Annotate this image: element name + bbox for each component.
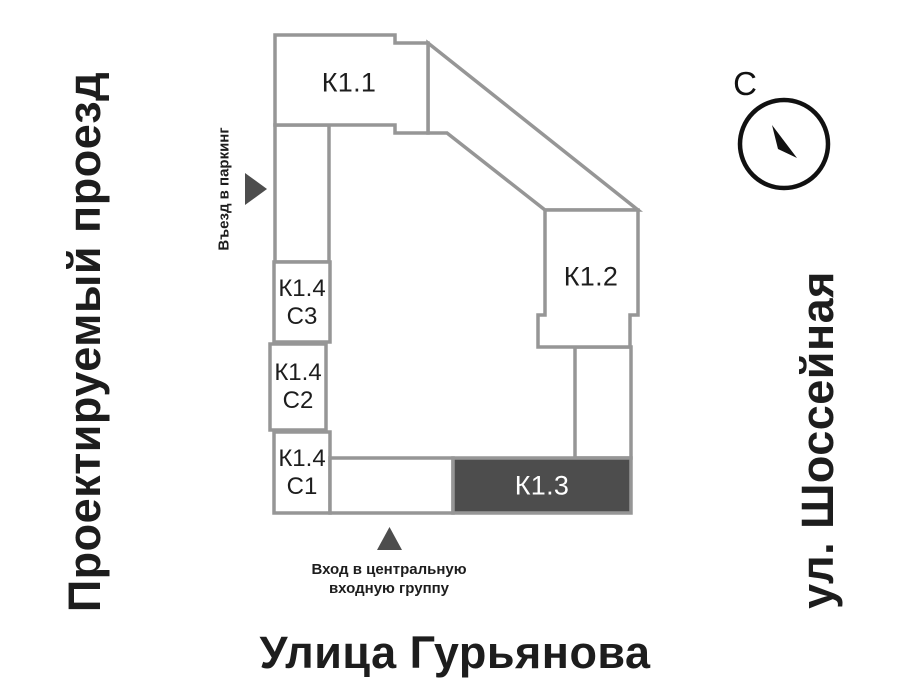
street-label-bottom: Улица Гурьянова xyxy=(259,627,650,679)
building-k11-label: К1.1 xyxy=(322,68,376,99)
building-k14-s1-label: К1.4 С1 xyxy=(278,445,325,501)
parking-entrance-arrow-icon xyxy=(245,173,267,205)
main-entrance-arrow-icon xyxy=(377,527,402,550)
street-label-left: Проектируемый проезд xyxy=(59,72,111,612)
main-entrance-label-line2: входную группу xyxy=(311,579,466,598)
building-k14-s3-label-line1: К1.4 xyxy=(278,275,325,303)
building-corridor-shape[interactable] xyxy=(575,347,631,458)
main-entrance-label-line1: Вход в центральную xyxy=(311,560,466,579)
building-k14-s3-label-line2: С3 xyxy=(278,303,325,331)
building-bottom-wing-shape[interactable] xyxy=(330,458,453,513)
site-plan: Проектируемый проезд ул. Шоссейная Улица… xyxy=(0,0,900,700)
building-diagonal-wing-shape[interactable] xyxy=(428,43,638,210)
building-k14-s1-label-line1: К1.4 xyxy=(278,445,325,473)
building-k14-s2-label-line1: К1.4 xyxy=(274,359,321,387)
building-k13-label: К1.3 xyxy=(515,471,569,502)
building-k14-s3-label: К1.4 С3 xyxy=(278,275,325,331)
building-k14-s1-label-line2: С1 xyxy=(278,473,325,501)
building-k14-s2-label-line2: С2 xyxy=(274,387,321,415)
street-label-right: ул. Шоссейная xyxy=(792,271,844,609)
building-k14-strip-shape[interactable] xyxy=(275,125,329,262)
main-entrance-label: Вход в центральную входную группу xyxy=(311,560,466,598)
compass-needle-icon xyxy=(772,125,797,158)
building-k14-s2-label: К1.4 С2 xyxy=(274,359,321,415)
compass-north-label: С xyxy=(733,65,757,103)
parking-entrance-label: Въезд в паркинг xyxy=(215,127,234,250)
building-k12-label: К1.2 xyxy=(564,262,618,293)
